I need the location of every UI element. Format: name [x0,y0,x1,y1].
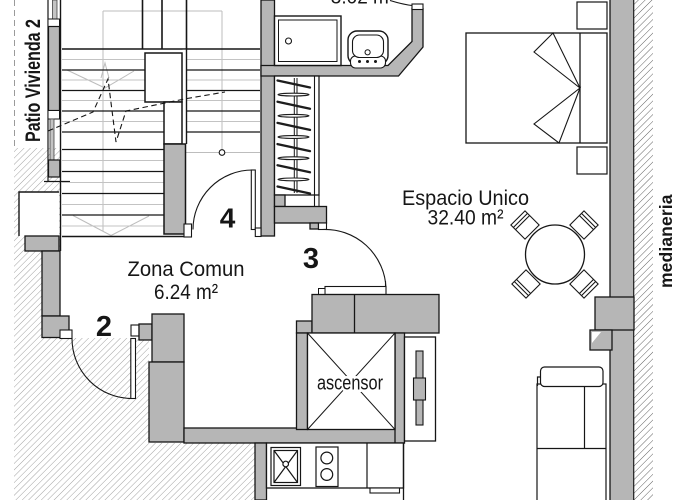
svg-text:2: 2 [96,311,112,343]
svg-text:Zona Comun: Zona Comun [128,257,245,281]
svg-text:4: 4 [220,203,236,234]
svg-text:3: 3 [303,243,319,275]
svg-text:32.40 m²: 32.40 m² [428,206,504,230]
svg-text:6.24 m²: 6.24 m² [154,280,218,304]
svg-text:ascensor: ascensor [317,373,383,395]
svg-text:3.02 m²: 3.02 m² [331,0,395,9]
svg-text:medianeria: medianeria [656,193,676,288]
svg-text:Patio Vivienda 2: Patio Vivienda 2 [22,19,45,142]
